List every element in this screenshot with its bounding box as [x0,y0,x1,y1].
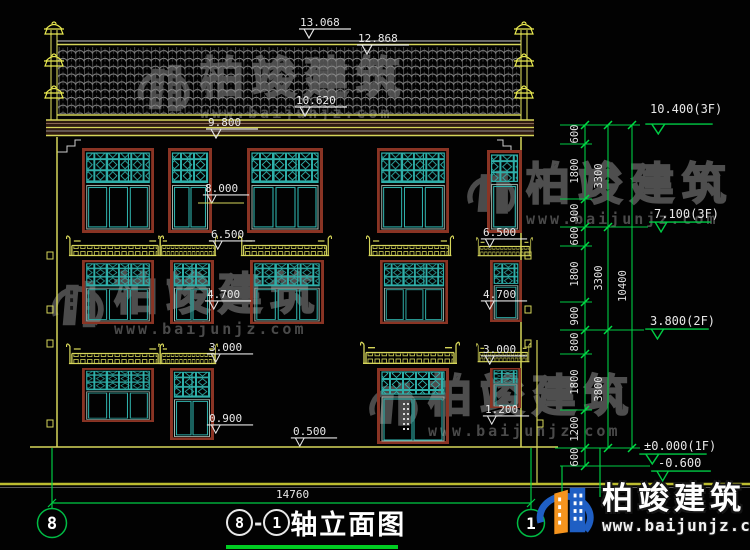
dim-segment: 1200 [569,416,581,441]
right-dim-labels: 600 1800 900 600 1800 900 800 1800 1200 … [569,125,629,467]
windows-3f [83,150,520,232]
level-labels: 10.400(3F) 7.100(3F) 3.800(2F) ±0.000(1F… [644,102,722,470]
brand-url: www.baijunjz.com [602,516,750,535]
mark-f2-awning-l: 6.500 [211,228,244,241]
walls [0,137,750,488]
dim-segment: 3800 [593,376,605,401]
awnings-2f [66,236,532,256]
elevation-drawing: 13.068 12.868 10.620 9.800 8.000 6.500 6… [0,0,750,550]
mark-f3-sill: 8.000 [205,182,238,195]
awning-1f-a [66,344,163,364]
dim-segment: 600 [569,227,581,246]
roof [44,22,534,152]
dim-segment: 3300 [593,265,605,290]
window-3f-d [378,150,447,232]
awning-2f-b [158,236,217,256]
mark-f2-sill-l: 4.700 [207,288,240,301]
level-minus600: -0.600 [658,456,701,470]
mark-roof-low: 10.620 [296,94,336,107]
awning-1f-door [361,342,460,363]
mark-porch: 0.500 [293,425,326,438]
level-flag-icon [645,124,712,134]
mark-f1-awning-r: 3.000 [483,343,516,356]
dim-segment: 900 [569,307,581,326]
axis-bubble-left-label: 8 [47,514,57,534]
title-underline [226,545,398,549]
window-3f-c [249,150,322,232]
finial-icon [514,22,534,34]
window-1f-b [172,369,213,438]
elevation-flag-icon [291,438,337,446]
bottom-dimension: 14760 [48,448,600,509]
mark-door-sill: 1.200 [485,403,518,416]
awning-2f-d [366,236,453,256]
elevation-flag-icon [207,354,253,362]
brand-footer: 柏竣建筑 www.baijunjz.com [530,482,750,540]
mark-ridge: 13.068 [300,16,340,29]
window-1f-e [491,369,519,408]
brand-name: 柏竣建筑 [602,482,750,516]
level-10400: 10.400(3F) [650,102,722,116]
windows-2f [83,261,520,323]
dim-segment: 600 [569,125,581,144]
cad-elevation-view[interactable]: 柏竣建筑 www.baijunjz.com 柏竣建筑 www.baijunjz.… [0,0,750,550]
mark-eave: 9.800 [208,116,241,129]
window-2f-a [83,261,152,323]
window-1f-a [83,369,152,421]
dim-segment: 800 [569,333,581,352]
dim-segment: 600 [569,448,581,467]
level-flag-icon [645,329,709,339]
title-text: 轴立面图 [290,503,406,542]
right-dimension-block: 600 1800 900 600 1800 900 800 1800 1200 … [555,102,722,481]
mark-f1-awning-l: 3.000 [209,341,242,354]
dim-segment: 1800 [569,158,581,183]
entry-door [379,370,448,443]
mark-f1-sill: 0.900 [209,412,242,425]
mark-ridge2: 12.868 [358,32,398,45]
mark-f2-awning-r: 6.500 [483,226,516,239]
dim-segment: 900 [569,204,581,223]
title-axis-left-bubble: 8 [226,509,253,536]
dim-segment: 3300 [593,163,605,188]
window-3f-a [83,150,152,232]
elevation-flag-icon [299,29,351,38]
level-flags [639,124,712,481]
dim-segment: 1800 [569,369,581,394]
corner-bracket-left [57,140,81,152]
awning-2f-c [238,236,331,256]
title-axis-right-bubble: 1 [263,509,290,536]
awnings-1f [66,342,530,363]
roof-tiles [58,47,520,114]
dim-segment: 10400 [617,270,629,302]
overall-width-dim: 14760 [276,488,309,501]
window-3f-e [489,152,521,232]
dim-segment: 1800 [569,261,581,286]
level-flag-icon [651,471,711,481]
awning-2f-a [66,236,163,256]
mark-f2-sill-r: 4.700 [483,288,516,301]
window-2f-c [251,261,322,323]
title-separator: - [254,511,262,535]
level-7100: 7.100(3F) [654,207,719,221]
window-2f-d [381,261,446,323]
finial-icon [44,22,64,34]
level-flag-icon [649,222,711,232]
eave-band [46,120,534,136]
level-zero: ±0.000(1F) [644,439,716,453]
awning-2f-e [476,238,532,256]
level-3800: 3.800(2F) [650,314,715,328]
brand-logo-icon [530,482,596,540]
drawing-title: 8 - 1 轴立面图 [226,503,416,550]
elevation-flag-icon [483,416,529,424]
